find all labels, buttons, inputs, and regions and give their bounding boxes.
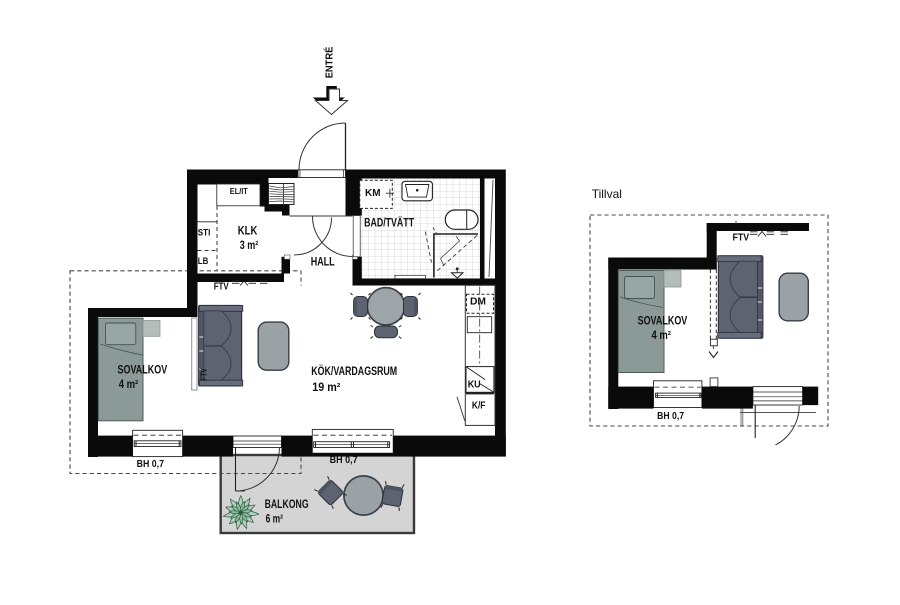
- svg-text:BAD/TVÄTT: BAD/TVÄTT: [364, 216, 414, 229]
- svg-text:EL/IT: EL/IT: [230, 186, 249, 196]
- svg-text:FTV: FTV: [214, 282, 229, 293]
- svg-text:BH 0,7: BH 0,7: [657, 411, 684, 422]
- svg-text:4 m²: 4 m²: [652, 330, 672, 342]
- svg-text:4 m²: 4 m²: [119, 379, 139, 391]
- svg-text:BH 0,7: BH 0,7: [137, 459, 165, 470]
- svg-text:KM: KM: [365, 187, 381, 199]
- svg-text:19 m²: 19 m²: [312, 382, 340, 394]
- svg-text:HALL: HALL: [311, 256, 335, 268]
- svg-text:ENTRÉ: ENTRÉ: [323, 47, 336, 79]
- svg-text:KLK: KLK: [238, 226, 258, 238]
- svg-text:3 m²: 3 m²: [240, 240, 259, 252]
- svg-text:BH 0,7: BH 0,7: [330, 455, 358, 466]
- svg-text:Tillval: Tillval: [592, 187, 622, 201]
- svg-text:KU: KU: [468, 379, 481, 390]
- svg-text:SOVALKOV: SOVALKOV: [638, 315, 688, 327]
- svg-text:DM: DM: [470, 296, 486, 308]
- svg-text:K/F: K/F: [472, 400, 486, 411]
- svg-text:STI: STI: [198, 228, 211, 239]
- svg-text:BALKONG: BALKONG: [265, 499, 309, 511]
- svg-text:LB: LB: [198, 256, 209, 267]
- svg-text:KÖK/VARDAGSRUM: KÖK/VARDAGSRUM: [311, 365, 397, 378]
- svg-text:6 m²: 6 m²: [266, 513, 284, 525]
- svg-text:FTV: FTV: [733, 232, 750, 243]
- svg-text:SOVALKOV: SOVALKOV: [118, 364, 168, 376]
- svg-text:FTV: FTV: [200, 367, 209, 381]
